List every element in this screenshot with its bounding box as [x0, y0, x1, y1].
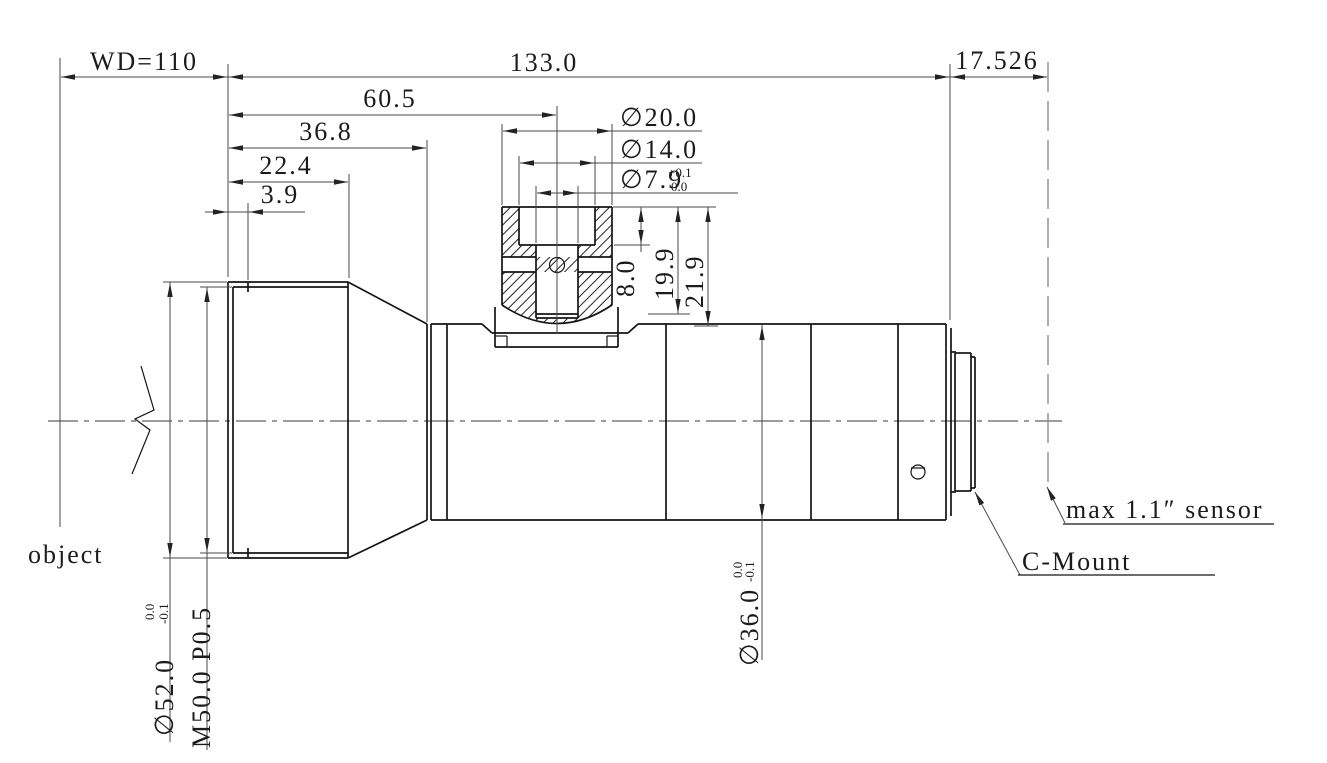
lens-mechanical-drawing: WD=110 133.0 17.526 60.5 36.8 22.4 3.9 ∅…: [0, 0, 1327, 763]
dim-port-hole-tol-lower: 0.0: [671, 179, 687, 194]
drawing-canvas: WD=110 133.0 17.526 60.5 36.8 22.4 3.9 ∅…: [0, 0, 1327, 763]
dim-port-inner-height: 19.9: [650, 247, 679, 301]
label-object-plane: object: [28, 540, 104, 569]
dim-body-diameter-tol-lower: -0.1: [742, 561, 757, 582]
dim-overall-length: 133.0: [510, 48, 579, 77]
dim-working-distance: WD=110: [90, 47, 198, 76]
dim-front-diameter-tol-lower: -0.1: [156, 603, 171, 624]
dim-front-diameter: ∅52.0: [150, 658, 179, 736]
dim-front-barrel: 22.4: [259, 151, 313, 180]
dim-port-offset: 60.5: [363, 84, 417, 113]
label-c-mount: C-Mount: [1022, 547, 1131, 576]
dim-front-thread: M50.0 P0.5: [187, 606, 216, 748]
dim-front-ring: 3.9: [261, 180, 300, 209]
dim-port-depth: 8.0: [611, 259, 640, 298]
dim-port-height: 21.9: [680, 255, 709, 309]
label-max-sensor: max 1.1″ sensor: [1066, 495, 1264, 524]
dim-port-od: ∅20.0: [620, 103, 698, 132]
dim-body-diameter: ∅36.0: [735, 588, 764, 666]
dim-port-counterbore: ∅14.0: [620, 135, 698, 164]
dim-port-hole-tol-upper: +0.1: [668, 165, 692, 180]
dim-front-diameter-tol-upper: 0.0: [142, 604, 157, 620]
dim-flange-distance: 17.526: [955, 46, 1039, 75]
dim-front-section: 36.8: [299, 117, 353, 146]
